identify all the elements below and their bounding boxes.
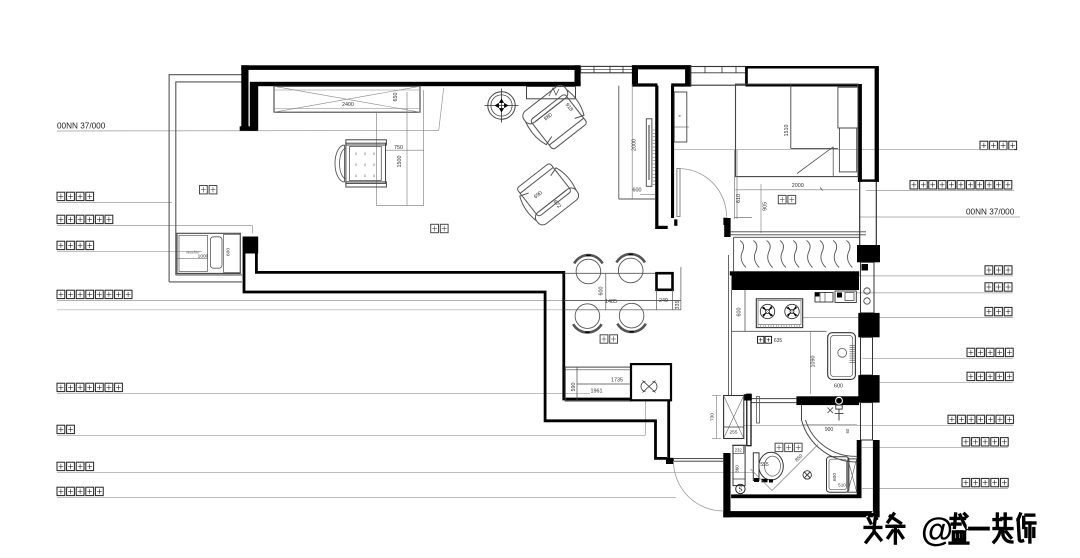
svg-text:Y: Y	[678, 114, 683, 117]
svg-text:730: 730	[710, 413, 716, 421]
svg-text:1961: 1961	[591, 389, 603, 395]
svg-text:900: 900	[825, 427, 834, 433]
svg-text:555: 555	[760, 462, 769, 468]
svg-text:00NN 37/000: 00NN 37/000	[57, 122, 106, 131]
svg-text:2000: 2000	[792, 183, 804, 189]
svg-text:232: 232	[735, 448, 743, 453]
svg-text:00NN 37/000: 00NN 37/000	[966, 208, 1015, 217]
svg-text:washer: washer	[186, 249, 200, 254]
svg-text:600: 600	[832, 473, 838, 481]
svg-text:650: 650	[393, 93, 399, 102]
svg-text:510: 510	[838, 483, 846, 488]
svg-text:335: 335	[675, 301, 681, 310]
svg-text:1735: 1735	[611, 378, 623, 384]
svg-text:2400: 2400	[342, 102, 354, 108]
svg-text:S: S	[738, 486, 742, 494]
svg-text:600: 600	[598, 287, 604, 296]
svg-text:600: 600	[633, 188, 642, 194]
svg-text:249: 249	[659, 298, 668, 304]
svg-text:635: 635	[774, 338, 783, 344]
svg-text:600: 600	[226, 248, 232, 256]
svg-text:600: 600	[834, 384, 843, 390]
svg-text:610: 610	[736, 194, 742, 203]
svg-text:750: 750	[394, 145, 403, 151]
svg-text:360: 360	[734, 465, 739, 473]
svg-text:1500: 1500	[397, 156, 403, 168]
svg-text:1090: 1090	[811, 356, 817, 368]
svg-text:2000: 2000	[632, 139, 638, 151]
svg-text:600: 600	[737, 308, 743, 317]
svg-text:255: 255	[729, 430, 737, 436]
svg-text:1510: 1510	[784, 125, 790, 137]
svg-text:590: 590	[571, 383, 577, 392]
svg-text:1485: 1485	[605, 299, 617, 305]
svg-text:60: 60	[845, 428, 850, 433]
svg-text:905: 905	[763, 202, 769, 211]
